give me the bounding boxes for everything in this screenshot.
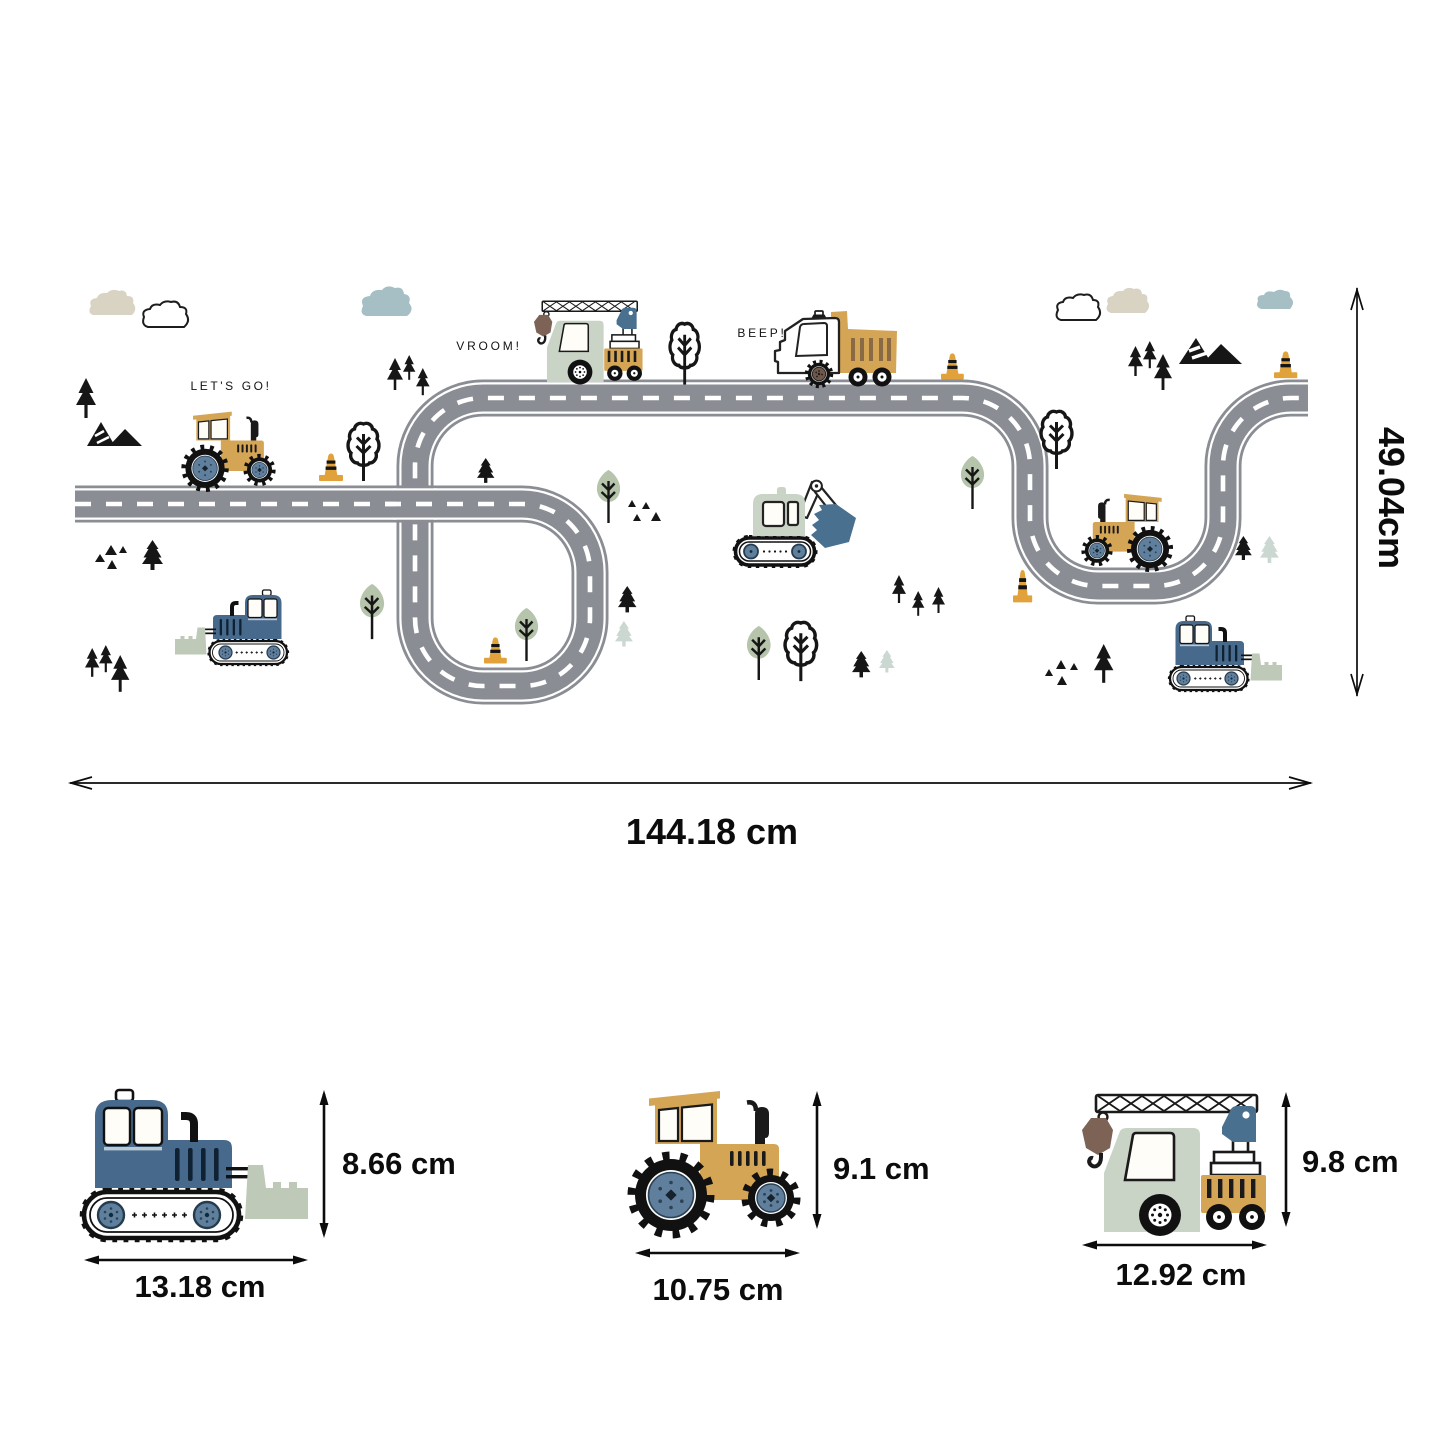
svg-text:10.75 cm: 10.75 cm	[653, 1272, 784, 1307]
svg-text:144.18 cm: 144.18 cm	[626, 811, 798, 852]
svg-text:VROOM!: VROOM!	[456, 339, 521, 353]
svg-text:BEEP!: BEEP!	[737, 326, 786, 340]
svg-text:9.8 cm: 9.8 cm	[1302, 1144, 1399, 1179]
svg-text:12.92 cm: 12.92 cm	[1116, 1257, 1247, 1292]
svg-text:13.18 cm: 13.18 cm	[135, 1269, 266, 1304]
svg-text:LET'S GO!: LET'S GO!	[190, 379, 271, 393]
svg-text:9.1 cm: 9.1 cm	[833, 1151, 930, 1186]
svg-text:8.66 cm: 8.66 cm	[342, 1146, 456, 1181]
svg-text:49.04cm: 49.04cm	[1371, 427, 1412, 569]
